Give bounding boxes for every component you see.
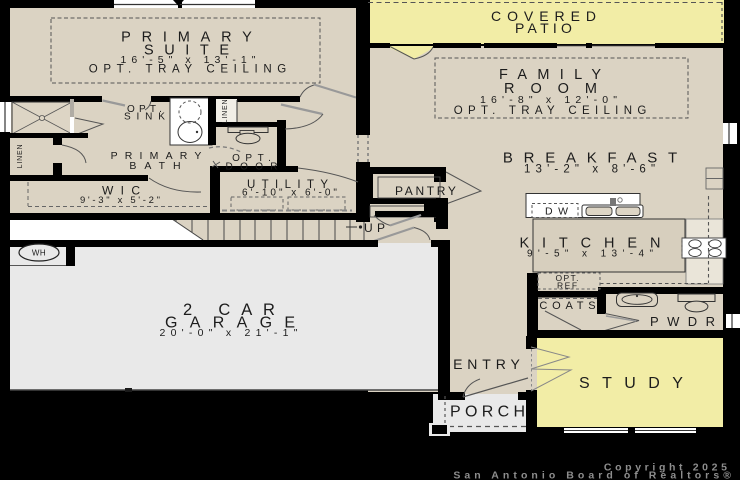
svg-text:DOOR: DOOR xyxy=(226,162,285,173)
svg-text:LINEN: LINEN xyxy=(17,144,24,169)
svg-text:9'-3" x 5'-2": 9'-3" x 5'-2" xyxy=(80,195,163,206)
svg-text:San Antonio Board of Realtors®: San Antonio Board of Realtors® xyxy=(453,470,735,480)
svg-text:PORCH: PORCH xyxy=(450,404,529,421)
svg-text:BATH: BATH xyxy=(129,160,188,172)
svg-text:WH: WH xyxy=(32,249,46,258)
svg-text:PATIO: PATIO xyxy=(515,20,576,36)
svg-text:9'-5" x 13'-4": 9'-5" x 13'-4" xyxy=(527,249,658,260)
svg-text:6'-10" x 6'-0": 6'-10" x 6'-0" xyxy=(242,188,340,199)
svg-text:DW: DW xyxy=(545,206,574,218)
svg-text:STUDY: STUDY xyxy=(579,375,695,392)
svg-text:ENTRY: ENTRY xyxy=(453,356,525,372)
svg-text:UP: UP xyxy=(364,221,389,235)
svg-text:PANTRY: PANTRY xyxy=(395,184,459,198)
svg-text:SINK: SINK xyxy=(124,112,171,123)
svg-text:LINEN: LINEN xyxy=(222,99,229,124)
svg-text:20'-0" x 21'-1": 20'-0" x 21'-1" xyxy=(160,327,303,339)
svg-text:PWDR: PWDR xyxy=(650,314,723,329)
svg-text:OPT. TRAY CEILING: OPT. TRAY CEILING xyxy=(89,64,292,76)
svg-text:OPT. TRAY CEILING: OPT. TRAY CEILING xyxy=(454,105,652,117)
svg-text:REF: REF xyxy=(557,281,579,291)
svg-text:13'-2" x 8'-6": 13'-2" x 8'-6" xyxy=(524,164,660,176)
svg-text:COATS: COATS xyxy=(539,300,600,312)
